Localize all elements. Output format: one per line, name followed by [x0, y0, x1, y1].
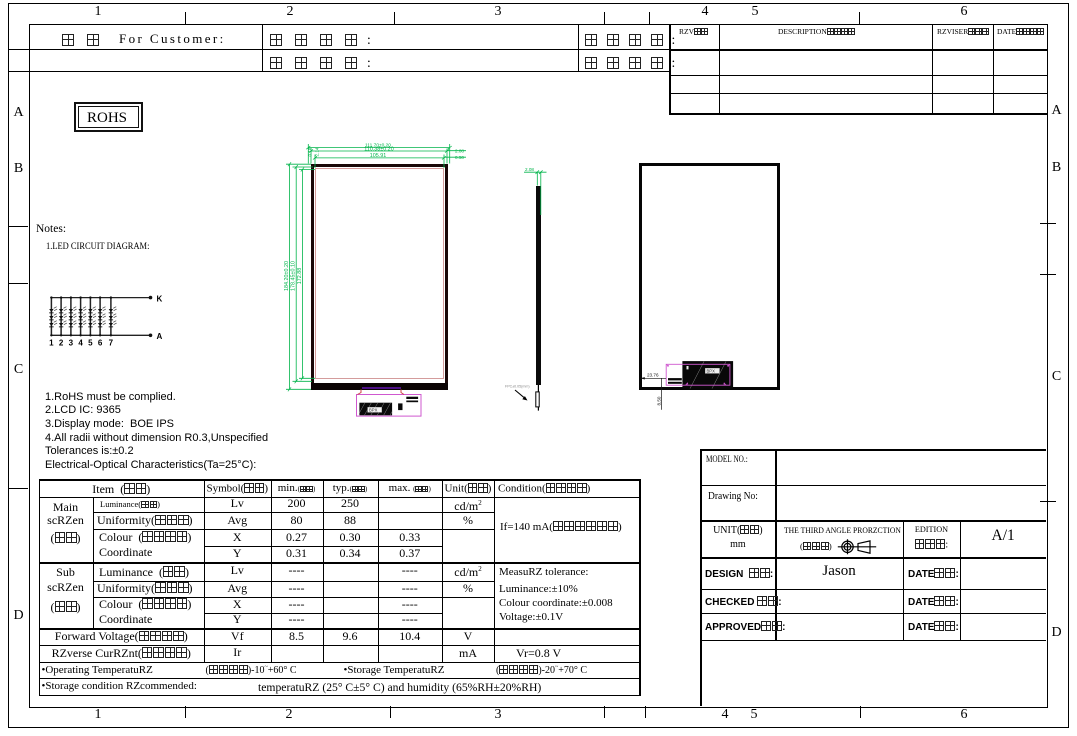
svg-text:8.50: 8.50: [656, 396, 661, 405]
svg-text:23.76: 23.76: [647, 373, 659, 378]
